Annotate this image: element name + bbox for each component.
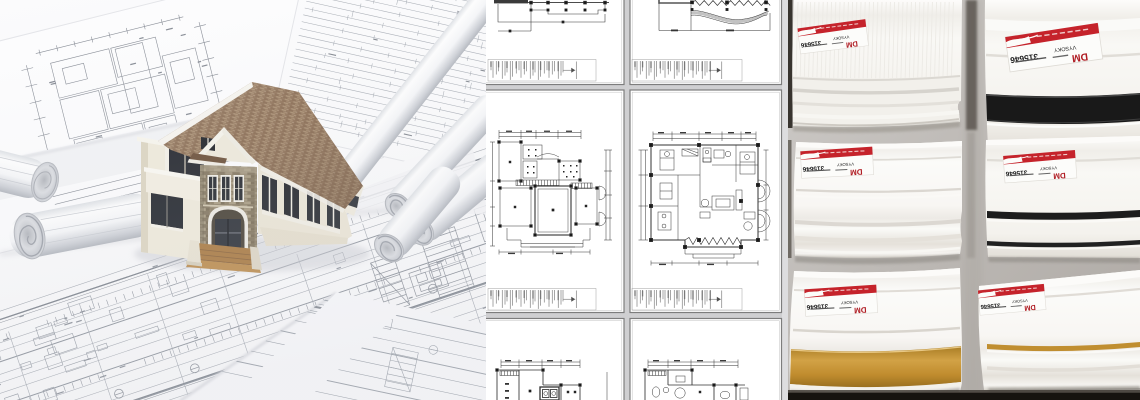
svg-text:DM: DM	[1024, 303, 1036, 313]
svg-text:DM: DM	[853, 305, 866, 315]
svg-text:DM: DM	[1071, 50, 1089, 63]
svg-text:VYSOKY: VYSOKY	[837, 162, 855, 168]
svg-text:DM: DM	[1053, 171, 1066, 181]
svg-text:DM: DM	[849, 167, 862, 177]
svg-text:VYSOKY: VYSOKY	[841, 300, 859, 306]
svg-text:DM: DM	[845, 39, 858, 49]
